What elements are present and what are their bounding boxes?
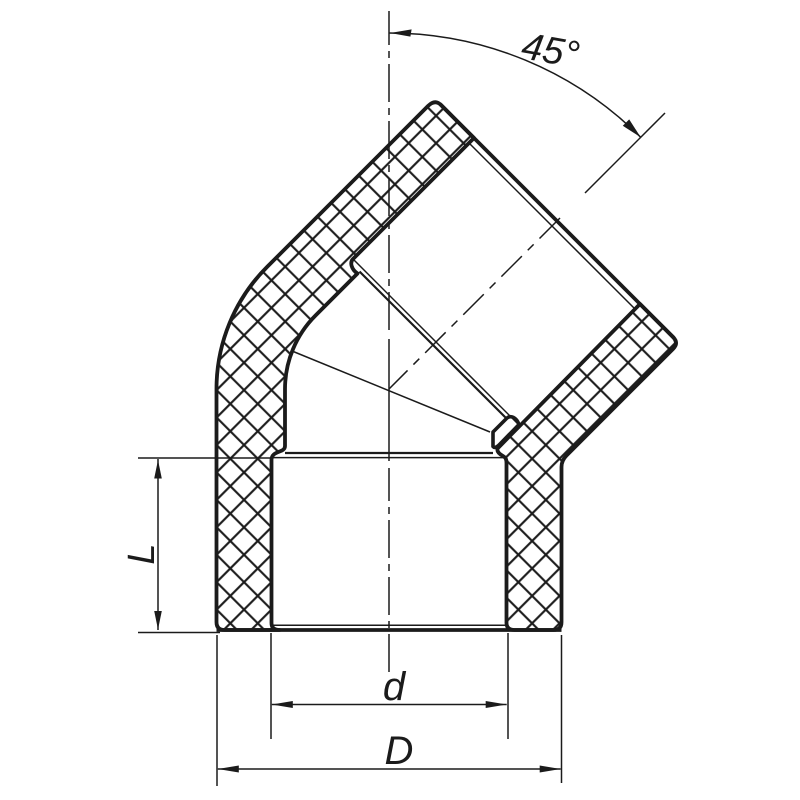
- svg-text:d: d: [383, 665, 407, 709]
- svg-text:D: D: [385, 729, 414, 773]
- svg-text:L: L: [121, 543, 163, 564]
